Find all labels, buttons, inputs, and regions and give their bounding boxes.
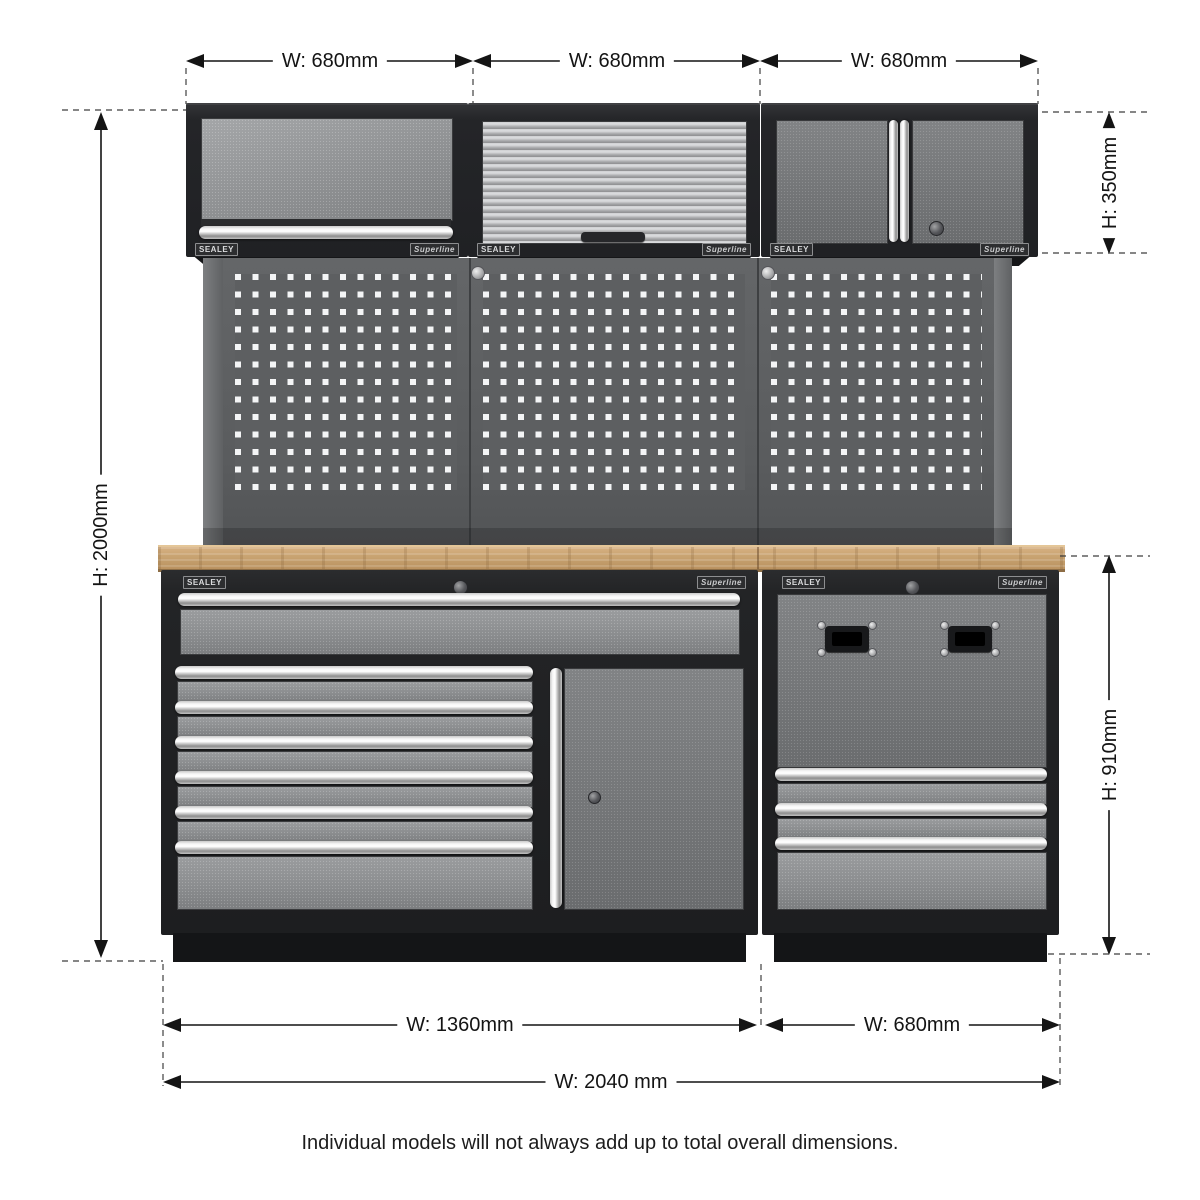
dim-label-overall-height: H: 2000mm — [89, 474, 113, 595]
footnote-text: Individual models will not always add up… — [0, 1132, 1200, 1155]
dim-label-base-right-width: W: 680mm — [855, 1013, 969, 1037]
dim-label-overall-width: W: 2040 mm — [546, 1070, 677, 1094]
dimension-lines — [101, 61, 1109, 1082]
dimension-annotations — [0, 0, 1200, 1200]
dim-label-wall-cabinet-height: H: 350mm — [1098, 128, 1122, 238]
dim-label-top-width-2: W: 680mm — [560, 49, 674, 73]
dim-label-top-width-3: W: 680mm — [842, 49, 956, 73]
product-dimension-diagram: SEALEY Superline SEALEY Superline SEALEY… — [0, 0, 1200, 1200]
dim-label-base-unit-height: H: 910mm — [1098, 700, 1122, 810]
dim-label-base-left-width: W: 1360mm — [397, 1013, 522, 1037]
dim-label-top-width-1: W: 680mm — [273, 49, 387, 73]
dimension-arrowheads — [94, 54, 1116, 1089]
extension-lines — [62, 68, 1150, 1086]
